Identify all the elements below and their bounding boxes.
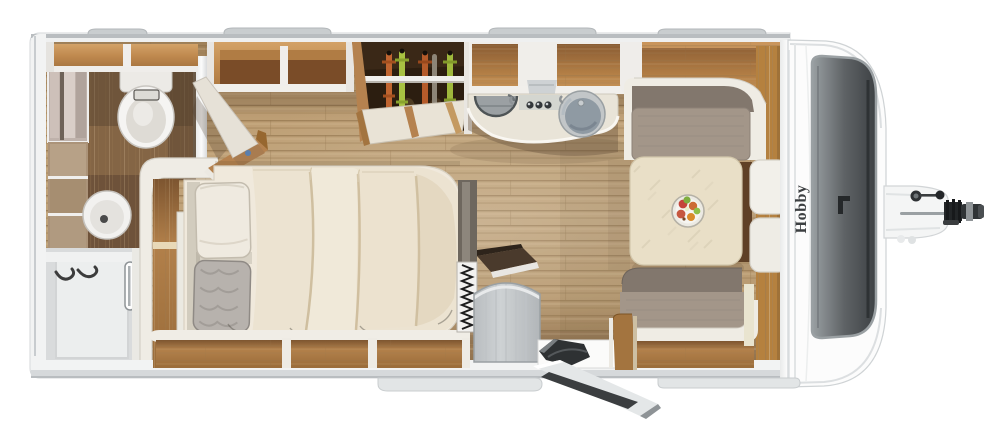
svg-text:Hobby: Hobby bbox=[793, 185, 810, 234]
